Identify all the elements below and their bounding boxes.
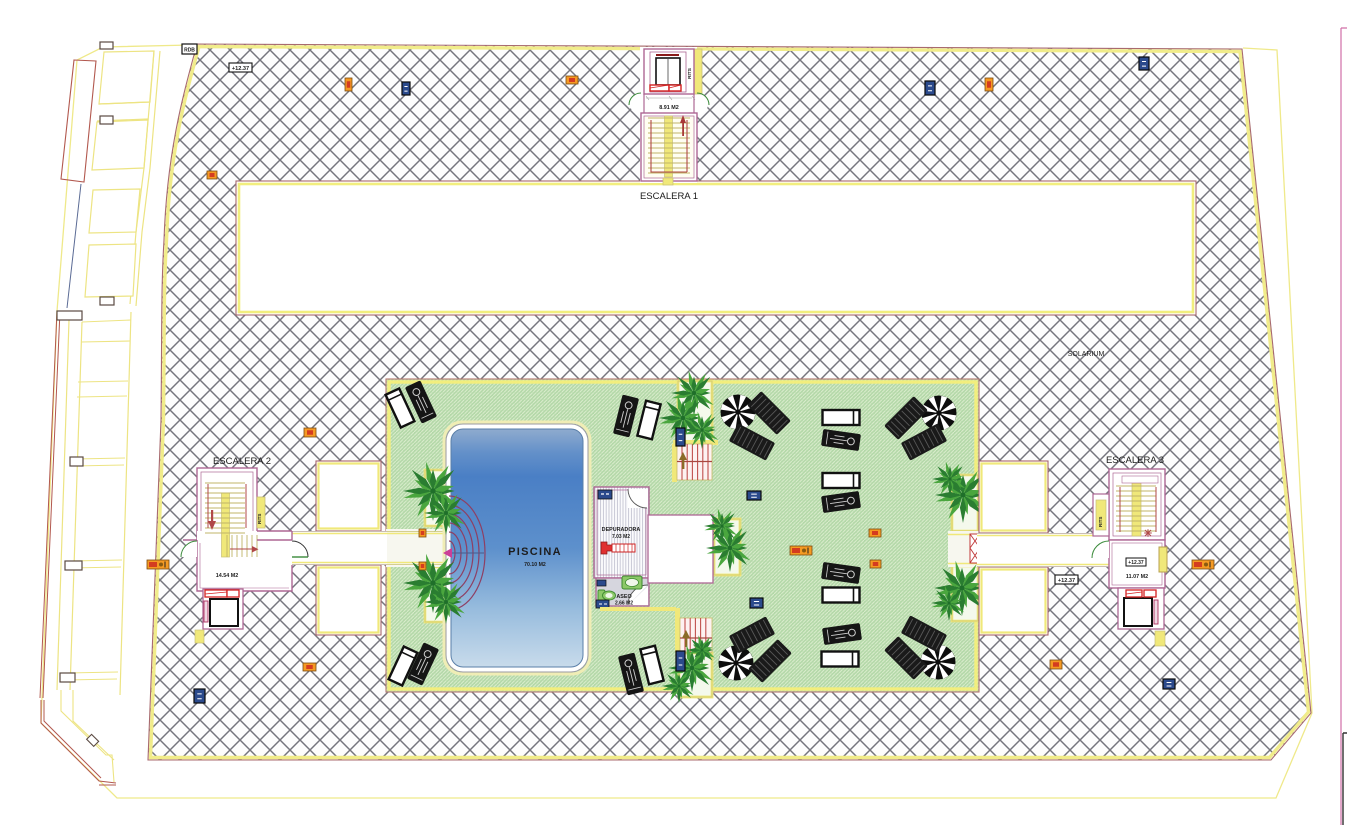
svg-text:+12.37: +12.37 [232, 66, 249, 72]
svg-text:70.10 M2: 70.10 M2 [524, 562, 546, 568]
svg-text:2.66 M2: 2.66 M2 [615, 601, 633, 607]
svg-text:RITS: RITS [1098, 517, 1103, 527]
svg-text:RITS: RITS [687, 67, 693, 79]
svg-text:ESCALERA 2: ESCALERA 2 [213, 456, 271, 467]
svg-text:DEPURADORA: DEPURADORA [602, 527, 641, 533]
svg-text:RDB: RDB [184, 48, 195, 54]
svg-text:7.03 M2: 7.03 M2 [612, 534, 630, 540]
svg-text:SOLARIUM: SOLARIUM [1068, 351, 1105, 358]
svg-text:ASEO: ASEO [616, 594, 631, 600]
svg-text:+12.37: +12.37 [1128, 560, 1144, 566]
svg-text:14.54 M2: 14.54 M2 [216, 573, 238, 579]
svg-text:11.07 M2: 11.07 M2 [1126, 574, 1148, 580]
svg-text:+12.37: +12.37 [1058, 578, 1075, 584]
svg-text:RITS: RITS [257, 514, 262, 524]
svg-text:ESCALERA 1: ESCALERA 1 [640, 191, 698, 202]
svg-text:PISCINA: PISCINA [508, 546, 562, 558]
svg-text:8.91 M2: 8.91 M2 [659, 105, 678, 111]
svg-text:ESCALERA 3: ESCALERA 3 [1106, 455, 1164, 466]
